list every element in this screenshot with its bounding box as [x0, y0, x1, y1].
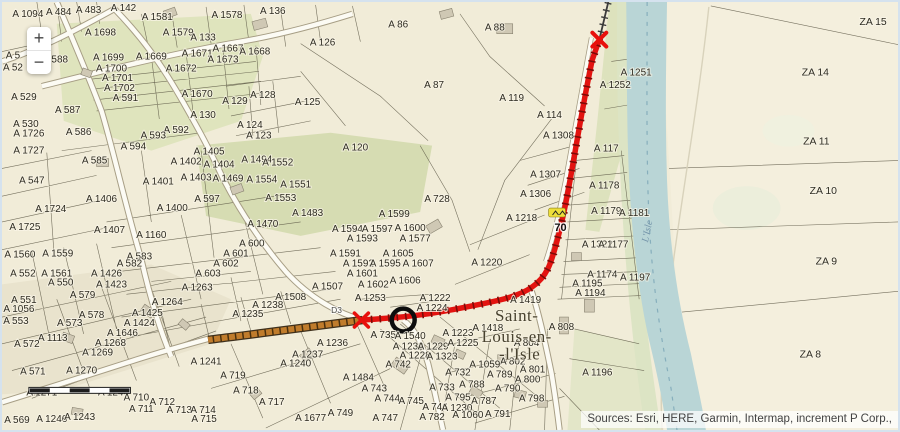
parcel-label: A 593 [141, 131, 167, 142]
parcel-label: ZA 14 [802, 67, 829, 78]
parcel-label: A 728 [424, 194, 450, 205]
parcel-label: A 123 [246, 131, 272, 142]
parcel-label: A 1194 [575, 288, 606, 299]
parcel-label: A 791 [485, 409, 511, 420]
parcel-label: A 5 [6, 50, 21, 61]
parcel-label: A 136 [260, 6, 286, 17]
parcel-label: ZA 10 [810, 186, 837, 197]
parcel-label: A 603 [195, 268, 221, 279]
parcel-label: A 550 [48, 277, 74, 288]
parcel-label: A 790 [495, 383, 521, 394]
parcel-label: A 798 [519, 393, 545, 404]
parcel-label: A 1607 [403, 259, 434, 270]
parcel-label: A 1237 [292, 350, 323, 361]
road-label-d3: D3 [331, 305, 342, 315]
parcel-label: A 1236 [317, 338, 348, 349]
parcel-label: A 125 [295, 97, 321, 108]
parcel-label: A 1726 [13, 129, 44, 140]
parcel-label: A 587 [55, 105, 81, 116]
building-footprint [571, 253, 581, 261]
parcel-label: A 484 [46, 7, 72, 18]
parcel-label: A 1426 [91, 268, 122, 279]
parcel-label: A 547 [19, 175, 45, 186]
parcel-label: A 1269 [82, 348, 113, 359]
parcel-label: A 1264 [152, 297, 183, 308]
parcel-label: A 586 [66, 127, 92, 138]
parcel-label: A 744 [375, 393, 401, 404]
parcel-label: A 795 [445, 392, 471, 403]
parcel-label: A 124 [237, 120, 263, 131]
parcel-label: A 1308 [543, 131, 574, 142]
town-label-line3: -l'Isle [499, 345, 540, 364]
parcel-label: A 787 [471, 396, 497, 407]
parcel-label: A 1307 [530, 169, 561, 180]
parcel-label: A 1599 [379, 209, 410, 220]
parcel-label: A 1220 [471, 258, 502, 269]
parcel-label: A 1600 [395, 223, 426, 234]
parcel-label: A 719 [220, 371, 246, 382]
parcel-label: A 749 [328, 408, 354, 419]
parcel-label: A 735 [371, 330, 397, 341]
parcel-label: A 711 [129, 404, 154, 415]
parcel-label: A 1577 [400, 234, 431, 245]
parcel-label: A 1668 [239, 47, 270, 58]
parcel-label: A 572 [14, 339, 40, 350]
parcel-label: A 1554 [246, 174, 277, 185]
parcel-label: A 1251 [621, 67, 652, 78]
parcel-label: A 1469 [213, 173, 244, 184]
parcel-label: A 745 [398, 396, 424, 407]
parcel-label: A 1400 [157, 203, 188, 214]
parcel-label: A 1724 [35, 204, 66, 215]
parcel-label: A 87 [424, 80, 444, 91]
parcel-label: A 1197 [620, 272, 651, 283]
parcel-label: A 133 [190, 33, 216, 44]
parcel-label: 588 [51, 54, 68, 65]
parcel-label: A 1581 [142, 12, 173, 23]
parcel-label: A 1727 [13, 146, 44, 157]
parcel-label: A 579 [70, 290, 96, 301]
parcel-label: A 1552 [262, 157, 293, 168]
parcel-label: A 1401 [143, 176, 174, 187]
parcel-label: A 1241 [191, 357, 222, 368]
parcel-label: A 1578 [212, 10, 243, 21]
parcel-label: A 742 [386, 360, 412, 371]
parcel-label: A 1423 [96, 279, 127, 290]
parcel-label: A 1407 [94, 225, 125, 236]
parcel-label: A 1470 [247, 219, 278, 230]
parcel-label: A 1160 [136, 230, 167, 241]
parcel-label: A 1403 [181, 172, 212, 183]
parcel-label: A 1270 [66, 366, 97, 377]
parcel-label: A 1404 [204, 159, 235, 170]
parcel-label: A 1225 [447, 338, 478, 349]
town-label-line1: Saint- [495, 306, 538, 325]
parcel-label: A 117 [594, 144, 619, 155]
parcel-label: A 747 [373, 413, 399, 424]
zoom-out-button[interactable]: − [27, 51, 51, 74]
parcel-label: A 782 [419, 412, 445, 423]
parcel-label: A 1094 [12, 9, 43, 20]
parcel-label: A 1669 [136, 51, 167, 62]
parcel-label: A 788 [459, 379, 485, 390]
parcel-label: A 1553 [265, 193, 296, 204]
building-footprint [584, 299, 594, 312]
parcel-label: A 529 [11, 92, 37, 103]
parcel-label: A 86 [388, 20, 408, 31]
parcel-label: A 1243 [64, 412, 95, 423]
parcel-label: A 1406 [86, 194, 117, 205]
parcel-label: ZA 8 [800, 350, 822, 361]
parcel-label: A 1419 [510, 295, 541, 306]
parcel-label: A 142 [111, 3, 137, 14]
zoom-control: + − [27, 27, 51, 74]
parcel-label: A 130 [190, 110, 216, 121]
parcel-label: A 1323 [427, 352, 458, 363]
parcel-label: A 1179 [591, 206, 622, 217]
parcel-label: A 718 [233, 385, 259, 396]
parcel-label: A 1235 [232, 309, 263, 320]
parcel-label: A 1725 [9, 222, 40, 233]
parcel-label: A 1672 [166, 63, 197, 74]
map-canvas[interactable]: 70 A 1094A 484A 483A 142A 1581A 1578A 13… [2, 2, 898, 430]
parcel-label: A 1677 [295, 413, 326, 424]
parcel-label: ZA 9 [816, 257, 838, 268]
parcel-label: A 1483 [292, 208, 323, 219]
parcel-label: A 553 [3, 316, 29, 327]
map-viewport[interactable]: 70 A 1094A 484A 483A 142A 1581A 1578A 13… [0, 0, 900, 432]
parcel-label: A 715 [191, 414, 217, 425]
parcel-label: A 1056 [3, 304, 34, 315]
scale-bar [29, 387, 131, 393]
parcel-label: A 569 [4, 415, 30, 426]
parcel-label: A 1602 [358, 279, 389, 290]
parcel-label: A 1306 [520, 189, 551, 200]
parcel-label: A 732 [445, 368, 471, 379]
parcel-label: A 591 [113, 93, 139, 104]
east-bank [659, 2, 898, 430]
route-shield-number: 70 [554, 222, 566, 234]
parcel-label: A 1178 [589, 180, 620, 191]
parcel-label: A 585 [82, 156, 108, 167]
parcel-label: A 808 [549, 322, 575, 333]
parcel-label: A 1698 [85, 28, 116, 39]
parcel-label: A 1246 [36, 414, 67, 425]
parcel-label: A 119 [499, 93, 524, 104]
parcel-label: A 1252 [600, 80, 631, 91]
parcel-label: A 1606 [390, 275, 421, 286]
parcel-label: A 1560 [4, 250, 35, 261]
parcel-label: A 592 [163, 125, 189, 136]
parcel-label: A 1253 [355, 293, 386, 304]
parcel-label: A 128 [250, 90, 276, 101]
parcel-label: A 1060 [452, 410, 483, 421]
parcel-label: A 597 [194, 194, 220, 205]
parcel-label: A 1263 [182, 282, 213, 293]
parcel-label: ZA 11 [803, 137, 830, 148]
parcel-label: A 1670 [182, 89, 213, 100]
parcel-label: A 1177 [598, 240, 629, 251]
parcel-label: ZA 15 [859, 17, 886, 28]
parcel-label: A 1593 [347, 234, 378, 245]
parcel-label: A 88 [485, 23, 505, 34]
parcel-label: A 1699 [93, 52, 124, 63]
parcel-label: A 1218 [506, 213, 537, 224]
parcel-label: A 1673 [208, 54, 239, 65]
parcel-label: A 1507 [312, 281, 343, 292]
parcel-label: A 1540 [395, 331, 426, 342]
parcel-label: A 52 [3, 62, 23, 73]
parcel-label: A 573 [57, 318, 83, 329]
parcel-label: A 1551 [280, 179, 311, 190]
parcel-label: A 717 [259, 397, 285, 408]
map-attribution: Sources: Esri, HERE, Garmin, Intermap, i… [581, 411, 898, 428]
parcel-label: A 120 [343, 143, 369, 154]
parcel-label: A 713 [166, 405, 192, 416]
zoom-in-button[interactable]: + [27, 27, 51, 50]
parcel-label: A 114 [537, 110, 562, 121]
parcel-label: A 1601 [347, 268, 378, 279]
parcel-label: A 129 [222, 96, 248, 107]
parcel-label: A 1559 [42, 249, 73, 260]
parcel-label: A 594 [121, 142, 147, 153]
parcel-label: A 1402 [171, 157, 202, 168]
parcel-label: A 710 [124, 392, 150, 403]
parcel-label: A 552 [10, 268, 36, 279]
parcel-label: A 1224 [417, 303, 448, 314]
parcel-label: A 1484 [343, 372, 374, 383]
parcel-label: A 483 [76, 5, 102, 16]
parcel-label: A 789 [487, 370, 513, 381]
parcel-label: A 571 [20, 367, 46, 378]
parcel-label: A 578 [79, 310, 105, 321]
parcel-label: A 1181 [619, 208, 650, 219]
parcel-label: A 1196 [582, 368, 613, 379]
parcel-label: A 1113 [38, 333, 68, 344]
parcel-label: A 126 [310, 38, 336, 49]
town-label-line2: Louis-en- [482, 327, 552, 346]
